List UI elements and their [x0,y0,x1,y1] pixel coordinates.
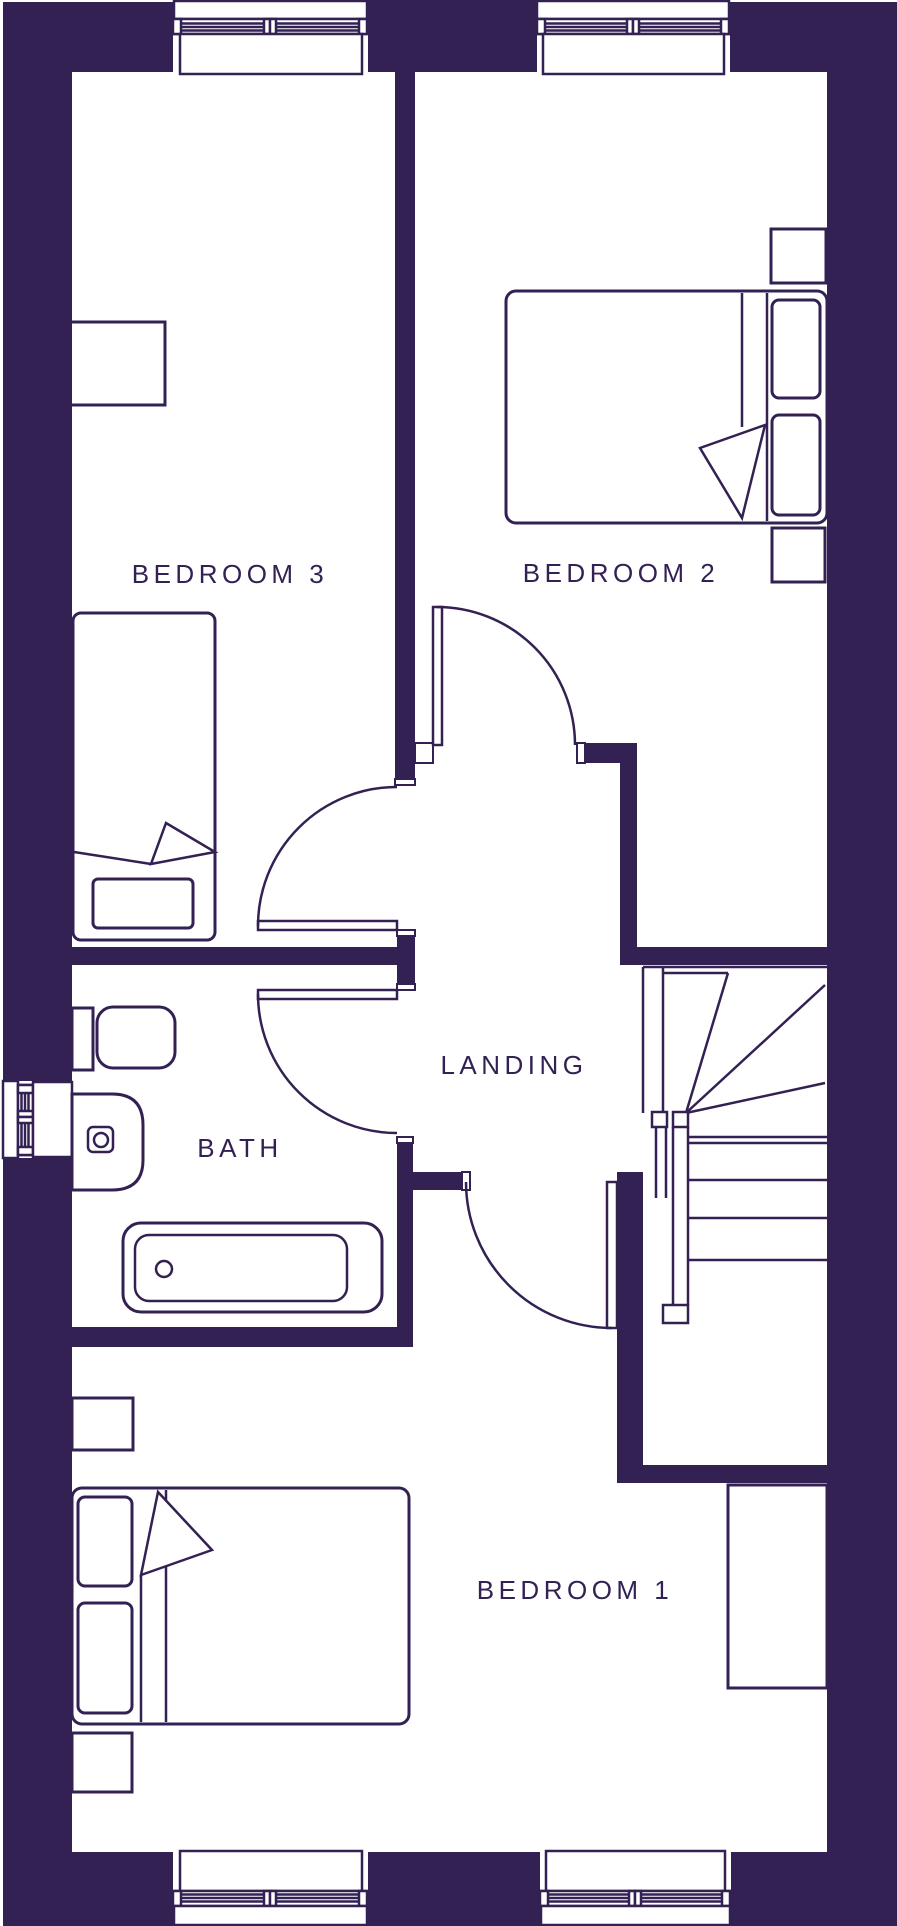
bedroom1-label: BEDROOM 1 [477,1575,674,1605]
bedroom1-wardrobe [728,1485,827,1688]
bedroom3-label: BEDROOM 3 [132,559,329,589]
toilet [72,1007,175,1070]
bedroom1-window-right [540,1851,731,1926]
staircase [643,967,827,1323]
bedroom1-window-left [173,1851,368,1926]
floor-plan-drawing: BEDROOM 3 BEDROOM 2 LANDING BATH BEDROOM… [0,0,897,1926]
bedroom2-door [415,607,585,763]
bedroom1-bedside-table-top [72,1398,133,1450]
sink [72,1094,143,1190]
landing-label: LANDING [440,1050,587,1080]
bedroom2-bed [506,291,827,523]
bedroom2-window [537,0,730,74]
bedroom2-bedside-table-top [771,229,826,283]
bedroom1-door [466,1182,617,1328]
bathtub [123,1223,382,1312]
floor-plan: BEDROOM 3 BEDROOM 2 LANDING BATH BEDROOM… [0,0,897,1926]
bedroom2-label: BEDROOM 2 [523,558,720,588]
bedroom3-window [173,0,368,74]
bedroom1-bed [72,1488,409,1724]
bath-window [0,1081,72,1158]
bedroom2-bedside-table-bottom [772,528,825,582]
bedroom3-desk [70,322,165,405]
bath-label: BATH [197,1133,282,1163]
bedroom3-bed [73,613,215,940]
bedroom1-bedside-table-bottom [72,1733,132,1792]
bath-door [258,990,397,1133]
bedroom3-door [258,787,397,930]
